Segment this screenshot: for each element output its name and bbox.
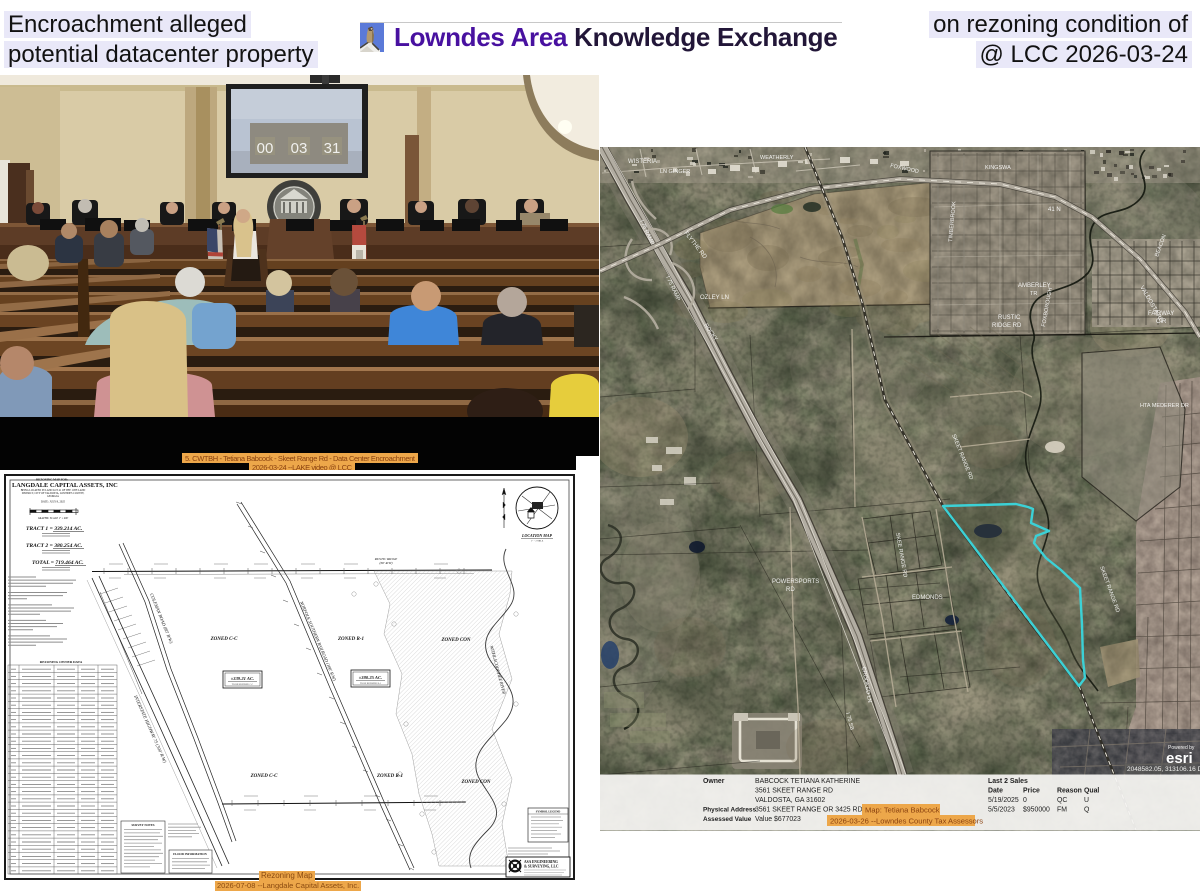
svg-text:1" = 2 MILE: 1" = 2 MILE xyxy=(531,540,544,543)
svg-text:TRACT 2 = 380.254 AC.: TRACT 2 = 380.254 AC. xyxy=(26,543,82,549)
svg-text:LOCATION MAP: LOCATION MAP xyxy=(521,533,552,538)
svg-text:±339.21 AC.: ±339.21 AC. xyxy=(231,676,254,681)
svg-text:AMBERLEY: AMBERLEY xyxy=(1018,283,1051,289)
svg-text:HTA MEDERER DR: HTA MEDERER DR xyxy=(1140,403,1189,409)
svg-text:Qual: Qual xyxy=(1084,788,1099,795)
svg-text:2026-03-26 --Lowndes County Ta: 2026-03-26 --Lowndes County Tax Assessor… xyxy=(830,817,983,826)
svg-text:(60' R/W): (60' R/W) xyxy=(379,561,393,565)
svg-text:TO BE REZONED R-1: TO BE REZONED R-1 xyxy=(360,683,381,685)
svg-text:OZLEY LN: OZLEY LN xyxy=(700,295,729,301)
svg-text:VALDOSTA, GA 31602: VALDOSTA, GA 31602 xyxy=(755,797,825,804)
svg-text:2048582.05, 313106.16 D: 2048582.05, 313106.16 D xyxy=(1127,766,1200,773)
svg-text:esri: esri xyxy=(1166,750,1193,767)
svg-text:5/5/2023: 5/5/2023 xyxy=(988,807,1015,814)
svg-text:ZONED R-1: ZONED R-1 xyxy=(376,774,403,779)
svg-text:5/19/2025: 5/19/2025 xyxy=(988,797,1019,804)
svg-text:ZONED CON: ZONED CON xyxy=(460,780,490,785)
svg-text:SURVEY NOTES: SURVEY NOTES xyxy=(131,823,154,827)
svg-text:WISTERIA: WISTERIA xyxy=(628,159,657,165)
svg-text:Price: Price xyxy=(1023,788,1040,795)
svg-text:Date: Date xyxy=(988,788,1003,795)
svg-text:U: U xyxy=(1084,797,1089,804)
svg-text:CIR: CIR xyxy=(1156,319,1167,325)
svg-text:KINGSWA: KINGSWA xyxy=(985,165,1011,171)
svg-text:$950000: $950000 xyxy=(1023,807,1050,814)
svg-text:±380.25 AC.: ±380.25 AC. xyxy=(359,675,382,680)
svg-text:SYMBOL LEGEND: SYMBOL LEGEND xyxy=(536,811,560,814)
svg-text:Map: Tetiana Babcock: Map: Tetiana Babcock xyxy=(865,806,940,815)
svg-text:& SURVEYING, LLC: & SURVEYING, LLC xyxy=(524,864,559,868)
svg-text:GRAPHIC SCALE 1" = 400': GRAPHIC SCALE 1" = 400' xyxy=(38,517,69,520)
svg-text:EDMONDS: EDMONDS xyxy=(912,595,943,601)
svg-text:0: 0 xyxy=(1023,797,1027,804)
svg-text:00: 00 xyxy=(257,140,274,157)
svg-text:FLOOD INFORMATION: FLOOD INFORMATION xyxy=(173,852,207,856)
svg-text:WEATHERLY: WEATHERLY xyxy=(760,155,794,161)
svg-text:Physical Address: Physical Address xyxy=(703,807,756,814)
svg-text:3561 SKEET RANGE OR 3425 RD: 3561 SKEET RANGE OR 3425 RD xyxy=(755,807,863,814)
svg-text:ZONED C-C: ZONED C-C xyxy=(250,774,278,779)
svg-text:Q: Q xyxy=(1084,807,1090,814)
svg-text:ZONED C-C: ZONED C-C xyxy=(210,637,238,642)
svg-text:TRACT 1 = 339.214 AC.: TRACT 1 = 339.214 AC. xyxy=(26,526,82,532)
svg-text:LANGDALE CAPITAL ASSETS, INC: LANGDALE CAPITAL ASSETS, INC xyxy=(12,482,118,489)
svg-text:TO BE REZONED C-C: TO BE REZONED C-C xyxy=(232,684,254,686)
svg-text:Reason: Reason xyxy=(1057,788,1082,795)
svg-text:Last 2 Sales: Last 2 Sales xyxy=(988,778,1028,785)
svg-text:FM: FM xyxy=(1057,807,1067,814)
svg-text:DATE: JULY 8, 2025: DATE: JULY 8, 2025 xyxy=(41,501,66,504)
svg-text:2026-03-24 --LAKE video @ LCC: 2026-03-24 --LAKE video @ LCC xyxy=(252,463,353,470)
svg-text:RD: RD xyxy=(786,587,795,593)
svg-text:BABCOCK TETIANA KATHERINE: BABCOCK TETIANA KATHERINE xyxy=(755,778,860,785)
svg-text:TR: TR xyxy=(1030,291,1037,297)
svg-text:TOTAL = 719.464 AC.: TOTAL = 719.464 AC. xyxy=(32,560,84,566)
svg-text:POWERSPORTS: POWERSPORTS xyxy=(772,579,819,585)
svg-text:ASA ENGINEERING: ASA ENGINEERING xyxy=(524,860,558,864)
svg-text:3561 SKEET RANGE RD: 3561 SKEET RANGE RD xyxy=(755,788,833,795)
svg-text:RIDGE RD: RIDGE RD xyxy=(992,323,1022,329)
svg-text:ZONED CON: ZONED CON xyxy=(440,638,470,643)
svg-text:41 N: 41 N xyxy=(1048,207,1061,213)
svg-text:LN GINGER: LN GINGER xyxy=(660,169,690,175)
svg-text:Owner: Owner xyxy=(703,778,725,785)
svg-text:5. CWTBH - Tetiana Babcock - S: 5. CWTBH - Tetiana Babcock - Skeet Range… xyxy=(185,454,416,463)
svg-text:31: 31 xyxy=(324,140,341,157)
svg-text:Value $677023: Value $677023 xyxy=(755,816,801,823)
svg-text:REZONING OWNER DATA: REZONING OWNER DATA xyxy=(40,660,83,664)
svg-text:FAIRWAY: FAIRWAY xyxy=(1148,311,1174,317)
svg-text:RUSTIC: RUSTIC xyxy=(998,315,1021,321)
svg-text:REZONING MAP FOR:: REZONING MAP FOR: xyxy=(36,478,68,482)
svg-text:GEORGIA: GEORGIA xyxy=(47,495,59,498)
svg-text:03: 03 xyxy=(291,140,308,157)
svg-text:QC: QC xyxy=(1057,797,1067,804)
svg-text:Assessed Value: Assessed Value xyxy=(703,816,752,823)
svg-text:ZONED R-1: ZONED R-1 xyxy=(337,637,364,642)
